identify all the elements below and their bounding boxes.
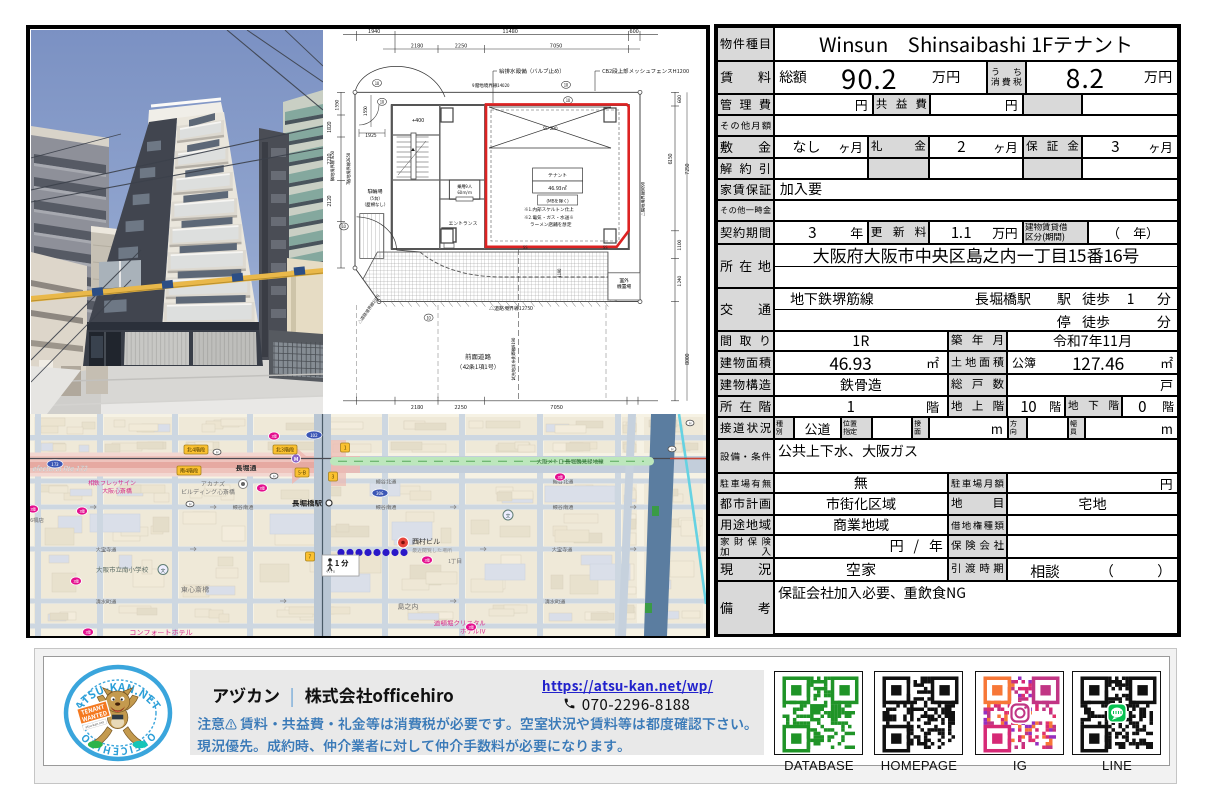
svg-text:H: H xyxy=(189,502,191,507)
svg-text:7階地境界線2650: 7階地境界線2650 xyxy=(346,152,352,185)
svg-text:2250: 2250 xyxy=(455,42,467,50)
svg-text:2億: 2億 xyxy=(30,507,36,513)
svg-text:1丁目: 1丁目 xyxy=(448,557,462,565)
svg-text:306: 306 xyxy=(375,491,384,497)
svg-text:清水町通: 清水町通 xyxy=(545,599,567,606)
svg-text:2億: 2億 xyxy=(79,509,85,515)
svg-text:1190: 1190 xyxy=(557,269,563,278)
svg-text:SS: SS xyxy=(523,245,528,251)
svg-text:CB2段上部メッシュフェンスH1200: CB2段上部メッシュフェンスH1200 xyxy=(602,67,689,75)
svg-text:SS: SS xyxy=(603,245,608,251)
svg-text:H: H xyxy=(689,421,691,426)
svg-text:H: H xyxy=(273,474,275,479)
svg-text:1550: 1550 xyxy=(334,99,341,110)
svg-text:10: 10 xyxy=(380,100,384,106)
svg-text:2億: 2億 xyxy=(259,486,265,492)
svg-text:テナント: テナント xyxy=(548,172,567,179)
svg-text:△道路境界線1920: △道路境界線1920 xyxy=(357,293,382,325)
svg-text:大阪心斎橋: 大阪心斎橋 xyxy=(102,486,132,495)
svg-text:最近閲覧した場所: 最近閲覧した場所 xyxy=(412,547,452,554)
svg-text:+400: +400 xyxy=(412,116,424,124)
svg-text:2210: 2210 xyxy=(326,153,333,164)
svg-text:清水町通: 清水町通 xyxy=(96,599,118,606)
svg-text:1 分: 1 分 xyxy=(335,558,349,569)
svg-text:H: H xyxy=(216,450,218,455)
svg-text:1100: 1100 xyxy=(676,239,683,250)
svg-text:(MBを除く): (MBを除く) xyxy=(546,198,569,205)
svg-text:2億: 2億 xyxy=(557,475,563,481)
svg-text:駐輪場: 駐輪場 xyxy=(366,188,382,195)
svg-text:文: 文 xyxy=(506,514,511,520)
svg-text:コンフォートホテル: コンフォートホテル xyxy=(130,628,194,636)
svg-text:東心斎橋: 東心斎橋 xyxy=(181,585,209,595)
svg-text:600: 600 xyxy=(676,95,683,103)
svg-text:ビルディング心斎橋: ビルディング心斎橋 xyxy=(181,487,235,496)
svg-text:1: 1 xyxy=(344,445,347,452)
svg-text:試先地正糸側距離9190: 試先地正糸側距離9190 xyxy=(511,337,517,380)
svg-text:南4階段: 南4階段 xyxy=(180,468,199,475)
svg-text:6150: 6150 xyxy=(667,153,674,164)
svg-text:2180: 2180 xyxy=(411,42,423,50)
svg-text:46.93㎡: 46.93㎡ xyxy=(548,184,567,192)
svg-text:（42条1項1号）: （42条1項1号） xyxy=(456,362,499,371)
svg-text:47m: 47m xyxy=(326,569,335,575)
svg-text:9階地境界線14020: 9階地境界線14020 xyxy=(472,82,510,89)
svg-text:鰻谷南通: 鰻谷南通 xyxy=(376,504,398,511)
svg-text:△隣地境界線9090: △隣地境界線9090 xyxy=(641,181,647,216)
svg-text:北3階段: 北3階段 xyxy=(275,447,295,454)
svg-text:1940: 1940 xyxy=(368,29,380,35)
svg-text:ラーメン店舗を想定: ラーメン店舗を想定 xyxy=(530,222,572,228)
svg-text:※1.内部スケルトン仕上: ※1.内部スケルトン仕上 xyxy=(524,206,574,213)
svg-text:10: 10 xyxy=(342,224,346,230)
svg-text:11480: 11480 xyxy=(502,29,517,35)
svg-text:M: M xyxy=(294,456,298,463)
svg-text:7050: 7050 xyxy=(550,42,562,50)
svg-text:※2.電気・ガス・水道※: ※2.電気・ガス・水道※ xyxy=(524,214,574,221)
svg-text:（屋根なし）: （屋根なし） xyxy=(362,202,388,208)
svg-text:2120: 2120 xyxy=(326,195,333,206)
svg-text:1240: 1240 xyxy=(676,275,683,286)
svg-text:173: 173 xyxy=(51,462,59,468)
svg-text:2億: 2億 xyxy=(73,579,79,585)
svg-text:60m/m: 60m/m xyxy=(458,190,472,196)
svg-text:1820: 1820 xyxy=(326,121,333,132)
svg-text:大阪市立南小学校: 大阪市立南小学校 xyxy=(96,564,149,574)
svg-text:北4階段: 北4階段 xyxy=(186,447,206,454)
svg-text:島之内: 島之内 xyxy=(398,602,419,612)
svg-text:7250: 7250 xyxy=(684,163,691,174)
svg-text:長堀橋駅: 長堀橋駅 xyxy=(292,498,322,509)
svg-text:△道路境界線12750: △道路境界線12750 xyxy=(489,305,533,312)
svg-text:鰻谷南通: 鰻谷南通 xyxy=(233,504,255,511)
svg-text:西村ビル: 西村ビル xyxy=(412,537,441,547)
svg-text:10: 10 xyxy=(426,315,430,321)
svg-text:5-B: 5-B xyxy=(298,470,306,477)
svg-text:H: H xyxy=(671,447,673,452)
svg-text:3: 3 xyxy=(331,474,335,481)
svg-text:102: 102 xyxy=(310,433,318,439)
svg-text:2億: 2億 xyxy=(424,558,430,564)
svg-text:2180: 2180 xyxy=(411,403,423,411)
svg-text:鰻谷北通: 鰻谷北通 xyxy=(376,479,398,486)
svg-text:▲: ▲ xyxy=(411,147,415,153)
svg-text:大宝寺通: 大宝寺通 xyxy=(552,547,574,554)
svg-text:10: 10 xyxy=(375,81,379,87)
svg-text:2250: 2250 xyxy=(454,403,466,411)
svg-text:2億: 2億 xyxy=(85,630,91,636)
svg-text:2億: 2億 xyxy=(271,434,277,440)
svg-text:大宝寺通: 大宝寺通 xyxy=(96,547,118,554)
svg-text:機置場: 機置場 xyxy=(617,283,632,290)
svg-text:600: 600 xyxy=(629,29,638,35)
svg-text:エントランス: エントランス xyxy=(449,220,478,227)
svg-text:2億: 2億 xyxy=(468,625,474,631)
svg-text:SL-200: SL-200 xyxy=(542,125,557,132)
svg-text:8000: 8000 xyxy=(684,353,691,364)
svg-text:給排水設備（バルブ止め）: 給排水設備（バルブ止め） xyxy=(499,67,565,75)
svg-text:6橋店: 6橋店 xyxy=(30,516,45,524)
svg-text:10: 10 xyxy=(564,83,568,89)
svg-text:大阪メトロ 長堀鶴見緑地線: 大阪メトロ 長堀鶴見緑地線 xyxy=(536,458,604,466)
svg-text:鰻谷南通: 鰻谷南通 xyxy=(553,504,575,511)
svg-text:前面道路: 前面道路 xyxy=(465,351,492,361)
svg-text:7: 7 xyxy=(309,554,312,561)
svg-text:7050: 7050 xyxy=(550,403,562,411)
svg-text:1550: 1550 xyxy=(363,106,369,116)
svg-text:文: 文 xyxy=(161,568,166,574)
svg-text:長堀通: 長堀通 xyxy=(235,464,257,474)
